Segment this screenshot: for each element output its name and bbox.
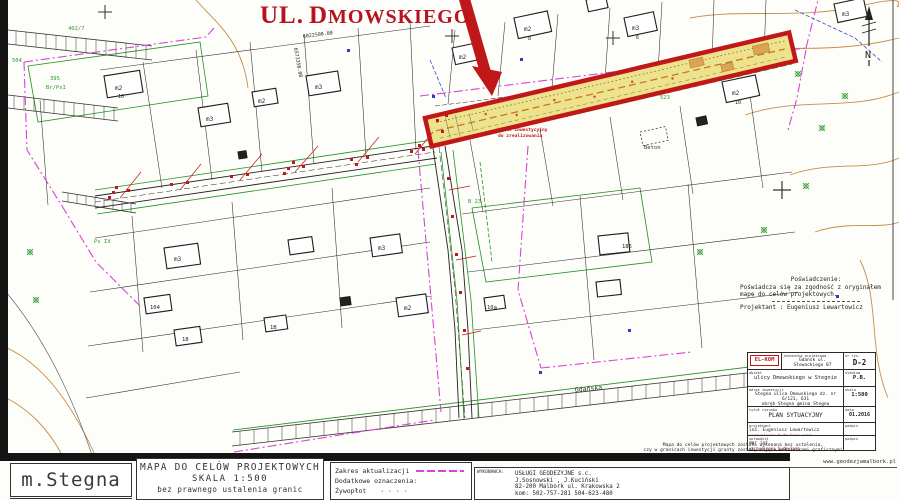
- building-label: m3: [842, 11, 850, 18]
- building-label: m3: [174, 256, 182, 263]
- footer-divider: [790, 467, 897, 468]
- certification-line: Poświadcza się za zgodność z oryginałem: [740, 284, 892, 291]
- building-label: m3: [315, 84, 323, 91]
- map-sheet: N m2 10 m3 m2 m3 m2 m2 8 m3 6 m2 10 m3 m…: [0, 0, 900, 500]
- map-doc-title: MAPA DO CELÓW PROJEKTOWYCH: [137, 462, 323, 474]
- coordinate-label: 6022500.00: [303, 30, 334, 40]
- disclaimer: Mapa do celów projektowych została wykon…: [596, 443, 890, 453]
- terrain-curve: [0, 285, 92, 455]
- parcel-label: Br/PsI: [46, 85, 66, 91]
- certification-line: mapę do celów projektowych.: [740, 291, 892, 298]
- contractor-people: J.Sosnowski , J.Kuciński: [515, 478, 745, 485]
- grid-cross-icons: [98, 5, 791, 199]
- building-label: m2: [732, 90, 740, 97]
- map-doc-note: bez prawnego ustalenia granic: [137, 485, 323, 495]
- title-block: EL-KOM jednostka projektowa Gdańsk ul. S…: [747, 352, 876, 451]
- contractor-address: 82-200 Malbork ul. Krakowska 2: [515, 484, 745, 491]
- house-number: 10: [735, 100, 741, 106]
- stage-value: P.B.: [845, 375, 874, 381]
- svg-text:do zrealizowania: do zrealizowania: [498, 133, 542, 139]
- scale-value: 1:500: [845, 392, 874, 398]
- town-name: m.Stegna: [21, 469, 121, 491]
- street-title-name: DMOWSKIEGO: [309, 2, 470, 30]
- contractor-name: USŁUGI GEODEZYJNE s.c.: [515, 471, 745, 478]
- north-label: N: [865, 50, 871, 61]
- legend-hedge-label: Żywopłot: [335, 487, 366, 495]
- certification-heading: Poświadczenie:: [740, 276, 892, 283]
- parcel-label: Ps IV: [94, 239, 111, 245]
- building-label: m3: [632, 25, 640, 32]
- legend-scope-label: Zakres aktualizacji: [335, 467, 409, 475]
- legend-additional-label: Dodatkowe oznaczenia:: [335, 476, 467, 486]
- parcel-label: B 23: [468, 199, 481, 205]
- surface-label: Beton: [644, 145, 661, 151]
- parcel-number: 104: [150, 305, 161, 311]
- location-line: Stegna ulica Dmowskiego dz. nr 6/121, 63…: [749, 392, 842, 402]
- building-label: m2: [459, 54, 467, 61]
- utility-marks-blue: [347, 10, 882, 374]
- building-label: m2: [115, 85, 123, 92]
- building-label: m2: [404, 305, 412, 312]
- contractor-phones: kom: 502-757-281 504-623-480: [515, 491, 745, 498]
- house-number: 10: [118, 94, 124, 100]
- parcel-number: 10a: [487, 305, 497, 311]
- parcel-number: 185: [622, 244, 632, 250]
- date-value: 01.2016: [845, 412, 874, 418]
- drawing-no: D-2: [845, 358, 874, 367]
- utility-lines-green: [28, 42, 792, 430]
- website-url: www.geodezjamalbork.pl: [770, 459, 896, 465]
- legend-box: Zakres aktualizacji Dodatkowe oznaczenia…: [330, 462, 472, 500]
- street-title: UL. DMOWSKIEGO: [260, 2, 470, 30]
- unit-value: Gdańsk ul. Słowackiego 87: [783, 358, 842, 368]
- signature-label: podpis: [845, 424, 874, 428]
- contractor-label: WYKONAWCA:: [477, 470, 504, 475]
- sheet-edge-left: [0, 0, 8, 453]
- building-label: m2: [258, 98, 266, 105]
- parcel-label: 395: [50, 76, 60, 82]
- building-label: m3: [206, 116, 214, 123]
- scope-line-swatch: [416, 470, 464, 472]
- signature-label: podpis: [845, 437, 874, 441]
- object-value: ulicy Dmowskiego w Stegnie: [749, 375, 842, 381]
- contractor-box: WYKONAWCA: USŁUGI GEODEZYJNE s.c. J.Sosn…: [474, 467, 790, 500]
- parcel-label: 402/7: [68, 26, 85, 32]
- building-label: m3: [378, 245, 386, 252]
- sheet-edge-bottom: [0, 453, 790, 461]
- parcel-number: 18: [182, 337, 189, 343]
- house-number: 8: [528, 36, 531, 42]
- house-number: 6: [636, 35, 639, 41]
- coordinate-label: 6573350.00: [292, 47, 303, 78]
- drawing-title: PLAN SYTUACYJNY: [749, 412, 842, 419]
- building-label: m2: [524, 26, 532, 33]
- parcel-number: 1B: [270, 325, 277, 331]
- parcel-label: 523: [660, 95, 670, 101]
- street-label: Gdańska: [574, 384, 602, 394]
- certification-designer: Projektant : Eugeniusz Lewartowicz: [740, 304, 892, 311]
- map-doc-scale: SKALA 1:500: [137, 474, 323, 485]
- investment-callout: obiekt inwestycyjny do zrealizowania: [495, 126, 548, 139]
- town-box: m.Stegna: [10, 463, 132, 497]
- certification-note: Poświadczenie: Poświadcza się za zgodnoś…: [740, 276, 892, 311]
- signature-line: [772, 301, 860, 302]
- parcel-label: 504: [12, 58, 23, 64]
- disclaimer-line: czy w granicach inwestycji grunty został…: [596, 448, 890, 453]
- map-title-box: MAPA DO CELÓW PROJEKTOWYCH SKALA 1:500 b…: [136, 458, 324, 500]
- company-logo: EL-KOM: [750, 355, 779, 366]
- hedge-symbol: · · · ·: [380, 487, 407, 495]
- street-title-prefix: UL.: [260, 2, 304, 29]
- svg-text:obiekt inwestycyjny: obiekt inwestycyjny: [495, 126, 548, 133]
